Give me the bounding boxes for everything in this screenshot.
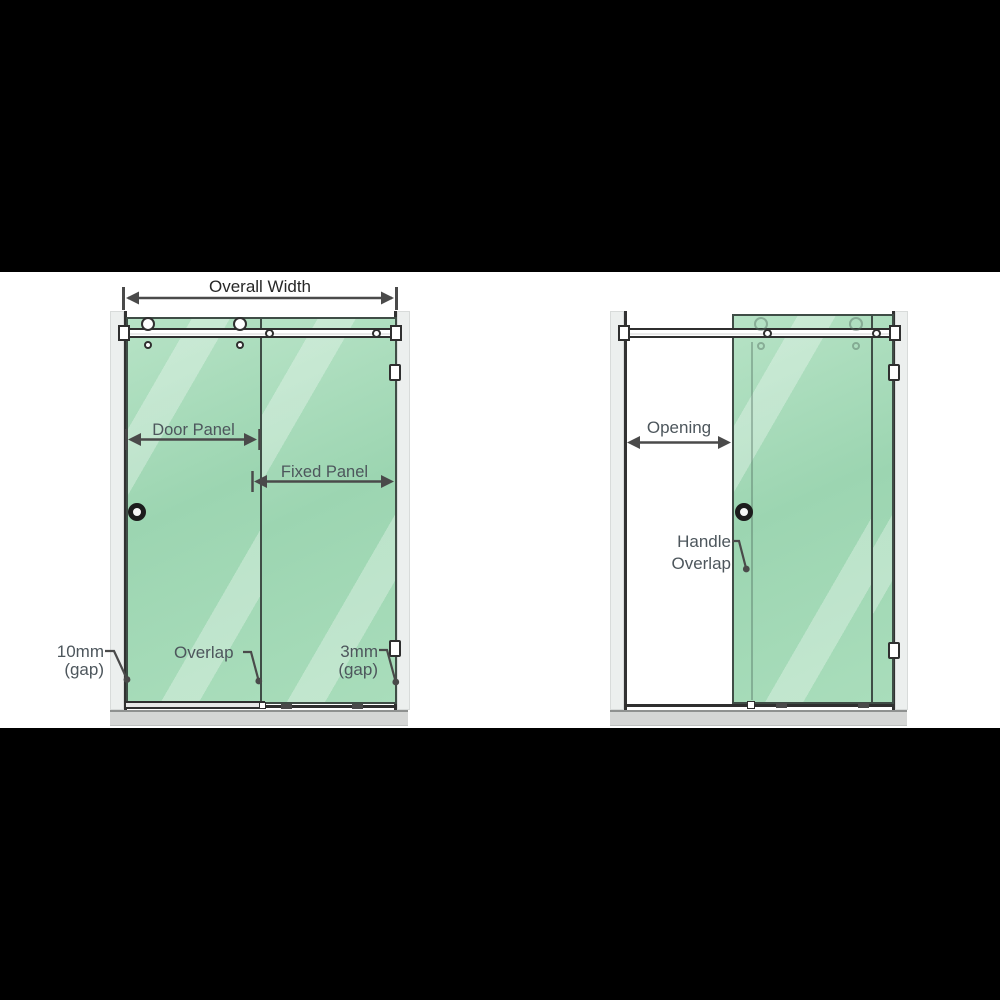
handle-overlap-line1: Handle — [650, 531, 731, 553]
bottom-guide — [747, 701, 755, 709]
door-roller — [233, 317, 247, 331]
fixed-panel-label: Fixed Panel — [255, 463, 394, 481]
door-bottom-rail — [124, 701, 265, 709]
rail-bolt — [372, 329, 381, 338]
gap-left-value: 10mm — [40, 643, 104, 661]
anti-jump-stop-ghost — [757, 342, 765, 350]
rail-end-cap-right — [889, 325, 901, 341]
door-roller-ghost — [849, 317, 863, 331]
door-handle-open-view — [735, 503, 753, 521]
right-diagram-left-wall-channel — [624, 311, 627, 710]
bottom-clip — [776, 703, 787, 708]
left-diagram-left-wall — [110, 311, 124, 710]
wall-clamp — [888, 642, 900, 659]
rail-end-cap-left — [118, 325, 130, 341]
bottom-clip — [352, 704, 363, 709]
rail-bolt — [763, 329, 772, 338]
handle-overlap-line2: Overlap — [650, 553, 731, 575]
bottom-rail-end-guide — [259, 702, 266, 709]
bottom-clip — [281, 704, 292, 709]
arrowhead-left — [627, 436, 640, 449]
diagram-page: Overall Width Door Panel Fixed Panel 10m… — [0, 0, 1000, 1000]
overlap-label: Overlap — [174, 644, 234, 662]
shower-base-right — [610, 710, 907, 726]
door-panel-glass-open-view — [732, 314, 873, 704]
overall-width-label: Overall Width — [160, 278, 360, 296]
gap-right-unit: (gap) — [320, 661, 378, 679]
door-handle — [128, 503, 146, 521]
anti-jump-stop-ghost — [852, 342, 860, 350]
door-roller — [141, 317, 155, 331]
letterbox-bottom — [0, 728, 1000, 1000]
right-diagram-left-wall — [610, 311, 624, 710]
handle-overlap-label: Handle Overlap — [650, 531, 731, 575]
arrowhead-left — [126, 292, 139, 305]
shower-base-left — [110, 710, 408, 726]
bottom-clip — [858, 703, 869, 708]
top-rail — [121, 328, 401, 338]
fixed-panel-edge-behind-door — [751, 342, 753, 700]
door-panel-label: Door Panel — [127, 421, 260, 439]
rail-end-cap-left — [618, 325, 630, 341]
anti-jump-stop — [144, 341, 152, 349]
opening-label: Opening — [629, 419, 729, 437]
rail-bolt — [265, 329, 274, 338]
gap-right-label: 3mm (gap) — [320, 643, 378, 679]
gap-right-value: 3mm — [320, 643, 378, 661]
gap-left-unit: (gap) — [40, 661, 104, 679]
letterbox-top — [0, 0, 1000, 272]
arrowhead-right — [718, 436, 731, 449]
rail-bolt — [872, 329, 881, 338]
bottom-track-open-view — [625, 704, 892, 707]
wall-clamp — [888, 364, 900, 381]
wall-clamp — [389, 640, 401, 657]
arrowhead-right — [381, 292, 394, 305]
rail-end-cap-right — [390, 325, 402, 341]
anti-jump-stop — [236, 341, 244, 349]
gap-left-label: 10mm (gap) — [40, 643, 104, 679]
wall-clamp — [389, 364, 401, 381]
